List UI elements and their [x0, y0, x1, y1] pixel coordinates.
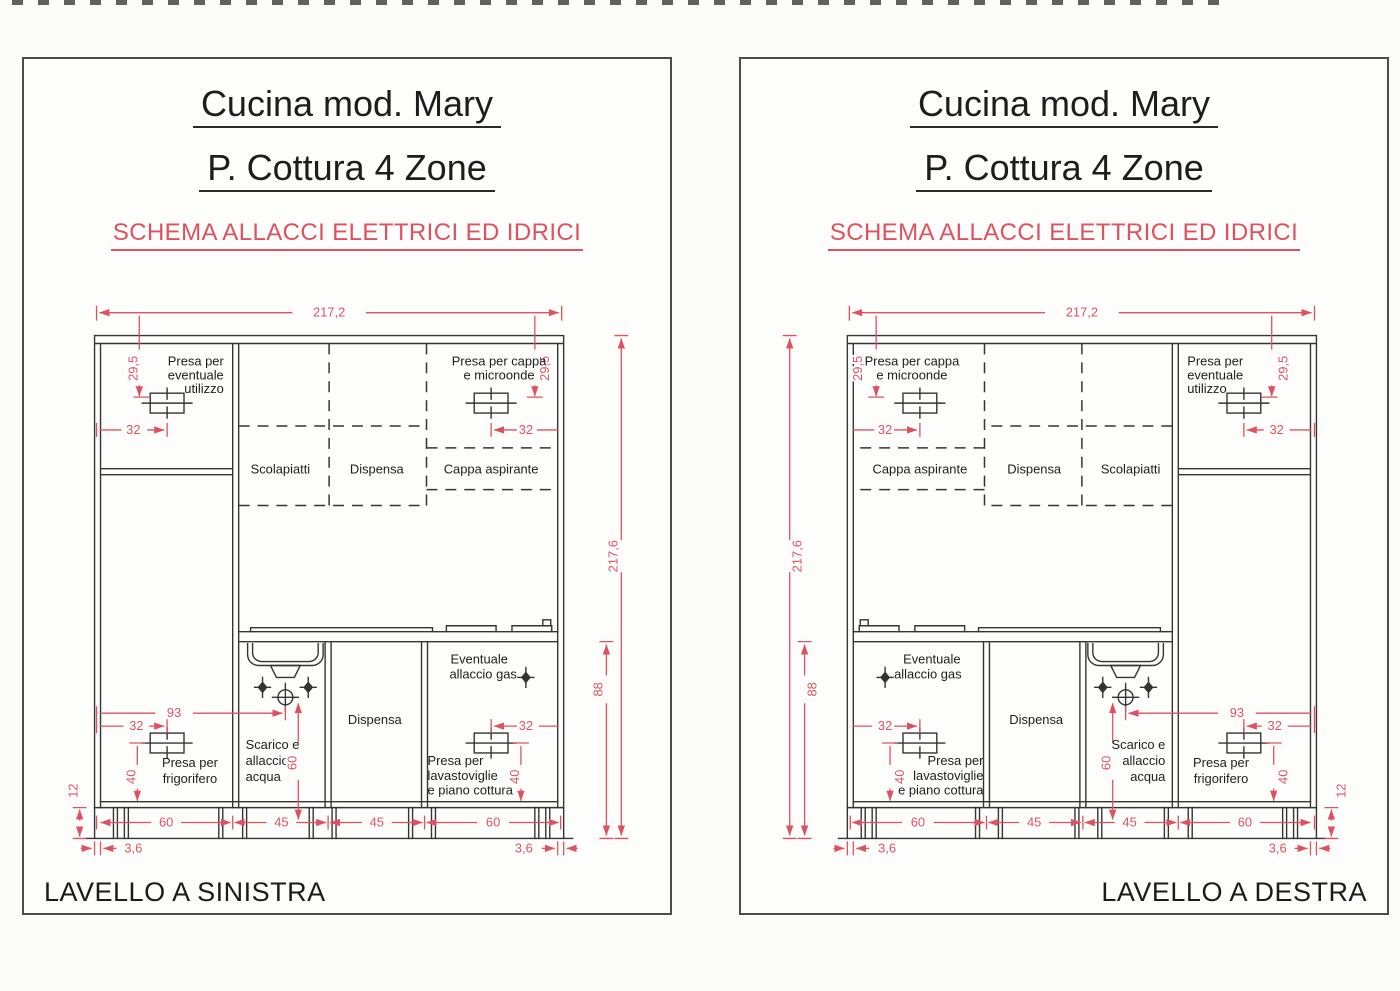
label-presa-lavastoviglie-1: Presa per — [428, 753, 485, 768]
label-dispensa-base: Dispensa — [1009, 712, 1064, 727]
dim-60-drain: 60 — [284, 756, 299, 770]
dim-total-width: 217,2 — [313, 305, 345, 320]
dim-3-6-right: 3,6 — [1269, 840, 1287, 855]
dim-40-left: 40 — [123, 770, 138, 784]
kitchen-model-title: Cucina mod. Mary — [193, 83, 501, 128]
dim-32-bottom-left: 32 — [878, 718, 892, 733]
dim-base-60-a: 60 — [159, 815, 173, 830]
label-presa-eventuale-3: utilizzo — [1187, 381, 1226, 396]
label-cappa-aspirante: Cappa aspirante — [873, 462, 968, 477]
label-gas-1: Eventuale — [450, 652, 507, 667]
label-presa-cappa-2: e microonde — [464, 367, 535, 382]
dim-32-bottom-right: 32 — [519, 718, 533, 733]
footer-sink-position-label: LAVELLO A SINISTRA — [44, 877, 326, 908]
dim-total-width: 217,2 — [1066, 305, 1098, 320]
title-row: Cucina mod. Mary — [24, 83, 670, 125]
footer-sink-position-label: LAVELLO A DESTRA — [1101, 877, 1367, 908]
label-presa-frigo-2: frigorifero — [163, 771, 218, 786]
label-dispensa-top: Dispensa — [350, 462, 405, 477]
label-presa-eventuale-1: Presa per — [168, 353, 225, 368]
dim-base-45-b: 45 — [370, 815, 384, 830]
label-scarico-2: allaccio — [1122, 753, 1165, 768]
drawing-text-layer: 217,2 29,5 29,5 32 32 Presa per cappa e … — [790, 305, 1349, 856]
sheet-lavello-a-sinistra: Cucina mod. Mary P. Cottura 4 Zone SCHEM… — [22, 57, 672, 915]
schema-heading-row: SCHEMA ALLACCI ELETTRICI ED IDRICI — [24, 219, 670, 247]
dim-32-top-left: 32 — [878, 422, 892, 437]
subtitle-row: P. Cottura 4 Zone — [741, 147, 1387, 189]
mirrored-line-art — [783, 306, 1339, 856]
dim-base-45-b: 45 — [1122, 815, 1136, 830]
dim-29-5-left: 29,5 — [125, 356, 140, 381]
schema-heading: SCHEMA ALLACCI ELETTRICI ED IDRICI — [828, 219, 1300, 251]
cooktop-subtitle: P. Cottura 4 Zone — [916, 147, 1212, 192]
drawing-text-layer: 217,2 29,5 29,5 32 32 Presa per eventual… — [66, 305, 621, 856]
dim-base-60-a: 60 — [911, 815, 925, 830]
dim-3-6-left: 3,6 — [878, 840, 896, 855]
line-art — [73, 306, 629, 856]
dim-3-6-right: 3,6 — [515, 840, 533, 855]
label-presa-eventuale-3: utilizzo — [184, 381, 223, 396]
dim-32-top-left: 32 — [126, 422, 140, 437]
label-presa-frigo-1: Presa per — [1193, 755, 1250, 770]
dim-12-plinth: 12 — [1333, 784, 1348, 798]
dim-base-45-a: 45 — [274, 815, 288, 830]
dim-3-6-left: 3,6 — [124, 840, 142, 855]
label-scarico-2: allaccio — [246, 753, 289, 768]
dim-32-top-right: 32 — [519, 422, 533, 437]
dim-12-plinth: 12 — [66, 784, 81, 798]
dim-base-45-a: 45 — [1027, 815, 1041, 830]
label-presa-eventuale-1: Presa per — [1187, 353, 1244, 368]
dim-32-top-right: 32 — [1270, 422, 1284, 437]
label-presa-lavastoviglie-2: lavastoviglie — [428, 768, 498, 783]
label-presa-eventuale-2: eventuale — [168, 367, 224, 382]
scanner-artifact-strip — [12, 0, 1232, 5]
label-dispensa-top: Dispensa — [1007, 462, 1062, 477]
label-scolapiatti: Scolapiatti — [1101, 462, 1161, 477]
label-gas-1: Eventuale — [903, 652, 960, 667]
label-presa-frigo-1: Presa per — [162, 755, 219, 770]
dim-29-5-left: 29,5 — [850, 356, 865, 381]
dim-29-5-right: 29,5 — [1276, 356, 1291, 381]
dim-32-bottom-right: 32 — [1268, 718, 1282, 733]
dim-total-height: 217,6 — [605, 540, 620, 572]
schema-heading-row: SCHEMA ALLACCI ELETTRICI ED IDRICI — [741, 219, 1387, 247]
dim-32-bottom-left: 32 — [129, 718, 143, 733]
dim-40-right: 40 — [1276, 770, 1291, 784]
kitchen-elevation-drawing-right: 217,2 29,5 29,5 32 32 Presa per cappa e … — [741, 292, 1387, 877]
label-scarico-3: acqua — [246, 769, 282, 784]
label-dispensa-base: Dispensa — [348, 712, 403, 727]
schema-heading: SCHEMA ALLACCI ELETTRICI ED IDRICI — [111, 219, 583, 251]
dim-base-height: 88 — [805, 682, 820, 696]
label-gas-2: allaccio gas — [894, 666, 961, 681]
label-presa-lavastoviglie-3: e piano cottura — [898, 783, 984, 798]
label-presa-lavastoviglie-1: Presa per — [928, 753, 985, 768]
sheet-lavello-a-destra: Cucina mod. Mary P. Cottura 4 Zone SCHEM… — [739, 57, 1389, 915]
dim-93: 93 — [167, 705, 181, 720]
kitchen-model-title: Cucina mod. Mary — [910, 83, 1218, 128]
label-presa-lavastoviglie-2: lavastoviglie — [913, 768, 983, 783]
label-gas-2: allaccio gas — [449, 666, 516, 681]
label-presa-frigo-2: frigorifero — [1194, 771, 1249, 786]
label-presa-cappa-1: Presa per cappa — [865, 353, 961, 368]
label-presa-cappa-2: e microonde — [876, 367, 947, 382]
label-presa-eventuale-2: eventuale — [1187, 367, 1243, 382]
label-scolapiatti: Scolapiatti — [251, 462, 311, 477]
kitchen-elevation-drawing-left: 217,2 29,5 29,5 32 32 Presa per eventual… — [24, 292, 670, 877]
label-scarico-1: Scarico e — [246, 737, 300, 752]
dim-base-60-b: 60 — [486, 815, 500, 830]
subtitle-row: P. Cottura 4 Zone — [24, 147, 670, 189]
label-scarico-1: Scarico e — [1112, 737, 1166, 752]
label-presa-cappa-1: Presa per cappa — [452, 353, 548, 368]
title-row: Cucina mod. Mary — [741, 83, 1387, 125]
dim-base-60-b: 60 — [1238, 815, 1252, 830]
label-presa-lavastoviglie-3: e piano cottura — [428, 783, 514, 798]
label-cappa-aspirante: Cappa aspirante — [444, 462, 539, 477]
dim-60-drain: 60 — [1099, 756, 1114, 770]
dim-total-height: 217,6 — [790, 540, 805, 572]
dim-93: 93 — [1230, 705, 1244, 720]
cooktop-subtitle: P. Cottura 4 Zone — [199, 147, 495, 192]
dim-base-height: 88 — [590, 682, 605, 696]
label-scarico-3: acqua — [1130, 769, 1166, 784]
